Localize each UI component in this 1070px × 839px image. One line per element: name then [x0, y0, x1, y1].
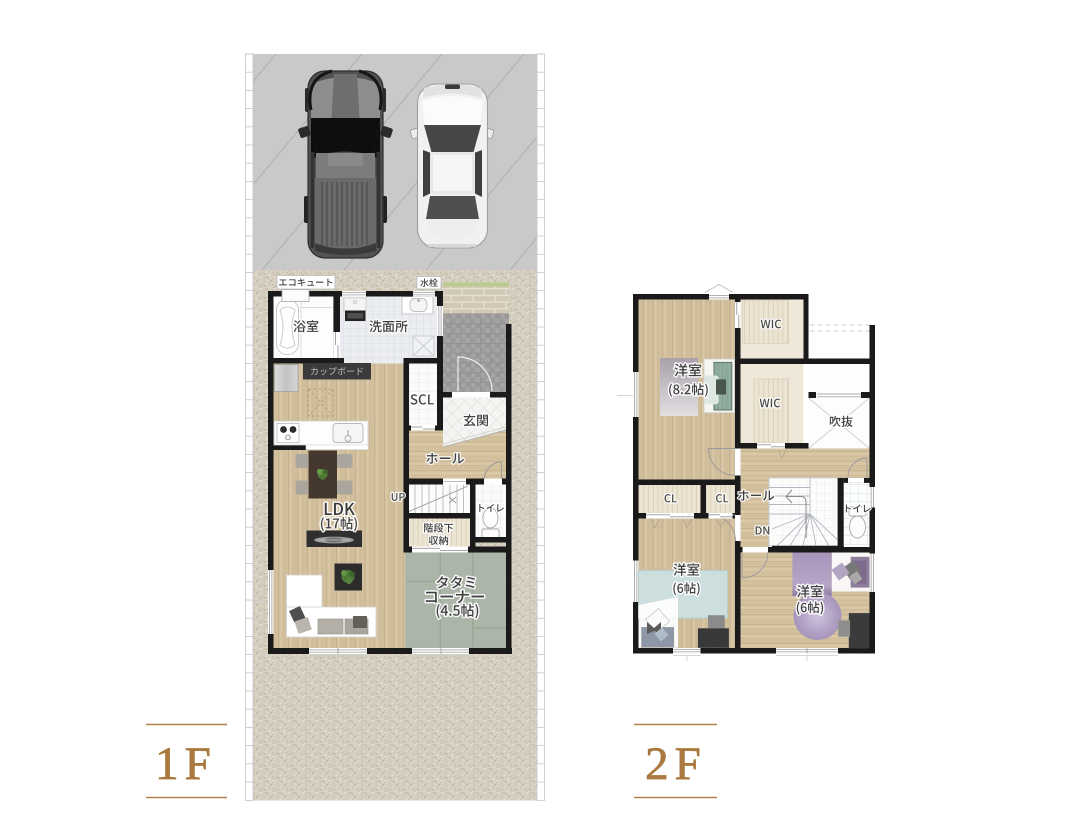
svg-text:1F: 1F	[155, 738, 217, 790]
svg-text:2F: 2F	[645, 738, 707, 790]
